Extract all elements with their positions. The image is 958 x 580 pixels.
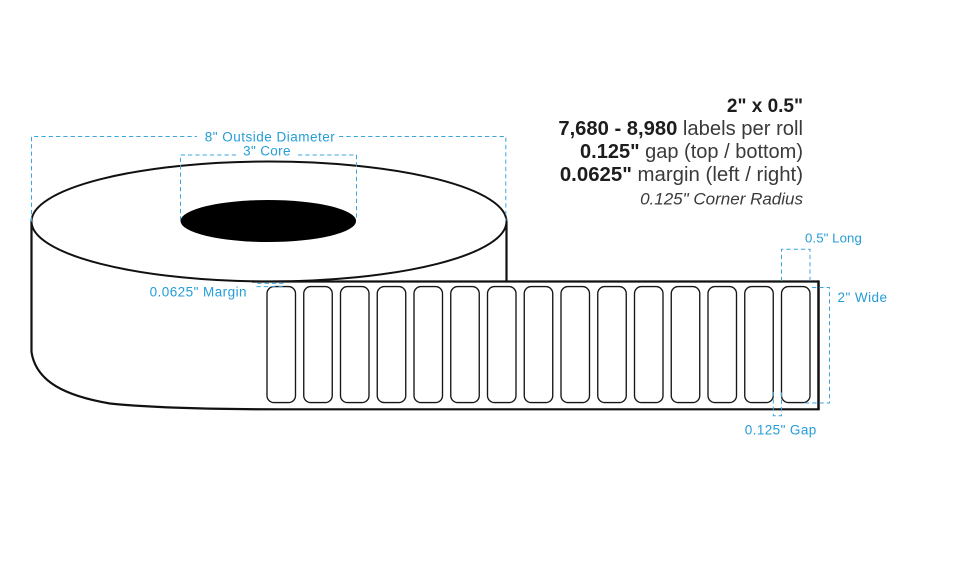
- svg-text:0.125" gap (top / bottom): 0.125" gap (top / bottom): [580, 141, 803, 163]
- svg-text:0.125" Gap: 0.125" Gap: [745, 422, 817, 437]
- svg-text:2" Wide: 2" Wide: [838, 290, 888, 305]
- svg-text:0.5" Long: 0.5" Long: [805, 231, 862, 246]
- svg-text:2" x 0.5": 2" x 0.5": [727, 96, 803, 117]
- svg-text:3" Core: 3" Core: [243, 144, 291, 159]
- svg-text:8" Outside Diameter: 8" Outside Diameter: [205, 129, 336, 144]
- svg-text:0.125" Corner Radius: 0.125" Corner Radius: [640, 190, 803, 209]
- svg-text:0.0625" Margin: 0.0625" Margin: [150, 285, 247, 300]
- svg-text:7,680 - 8,980 labels per roll: 7,680 - 8,980 labels per roll: [558, 118, 803, 140]
- svg-text:0.0625" margin (left / right): 0.0625" margin (left / right): [560, 164, 803, 186]
